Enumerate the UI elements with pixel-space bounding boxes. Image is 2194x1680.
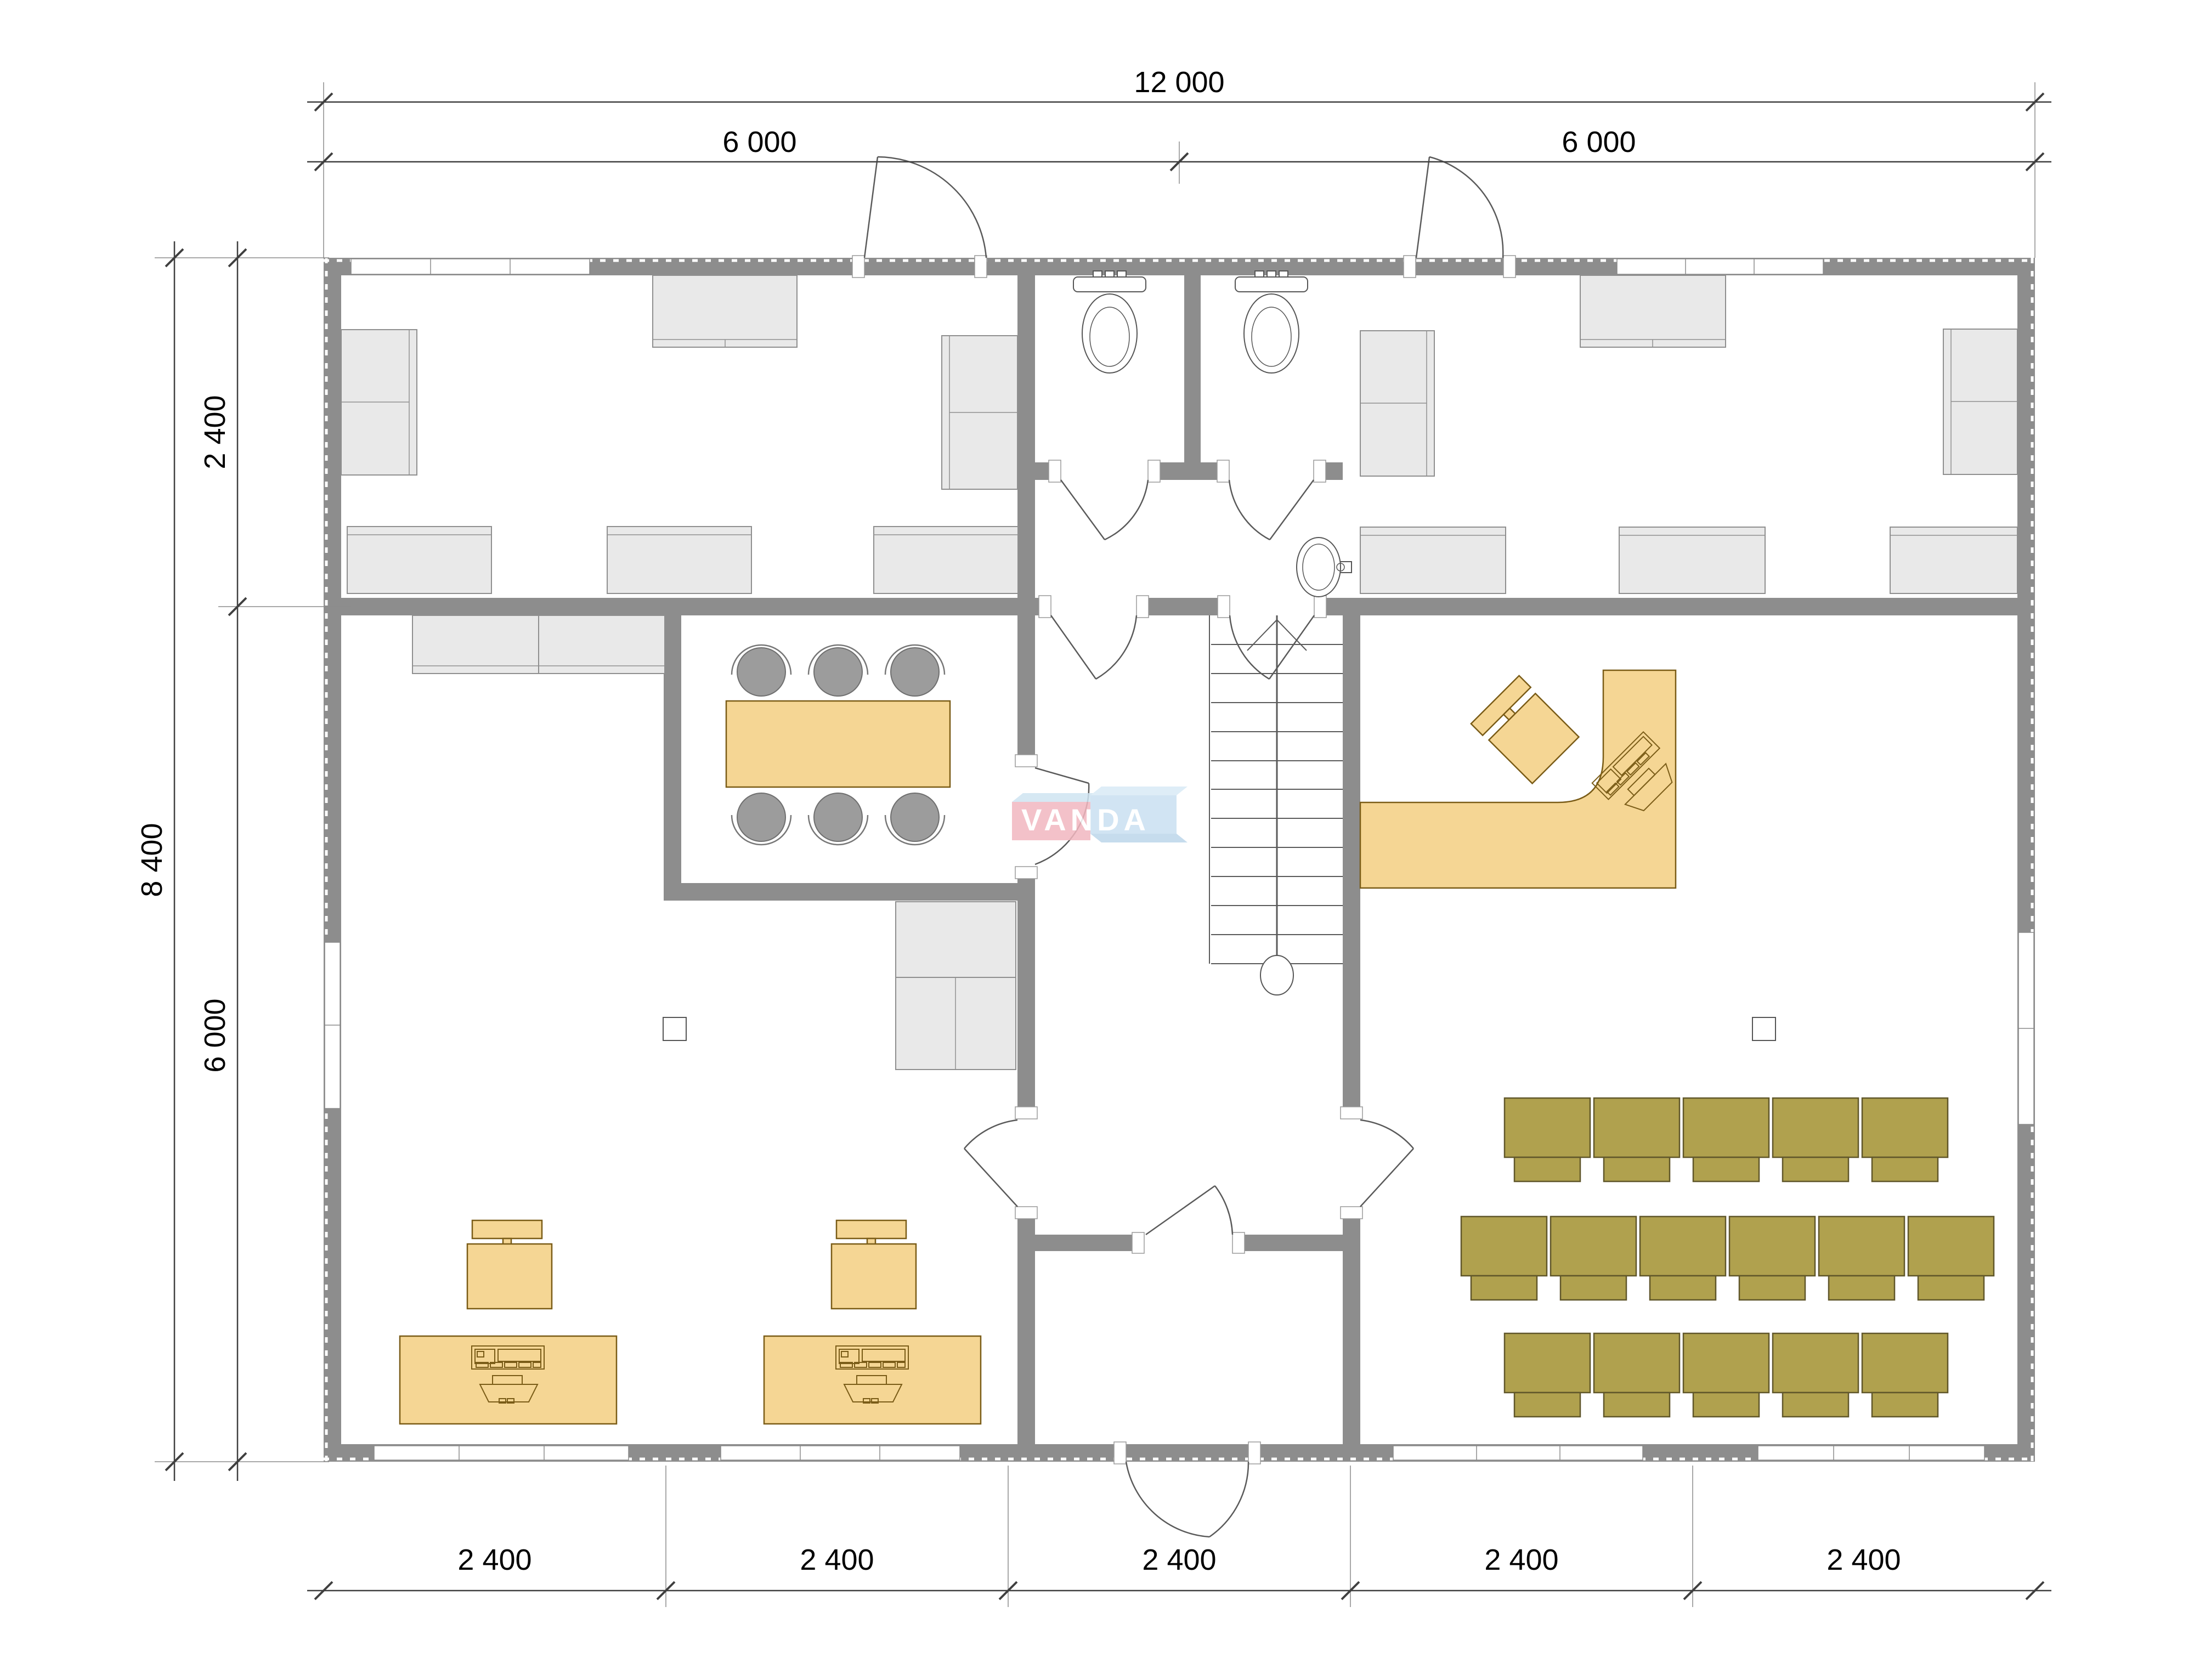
desk xyxy=(607,527,751,593)
meeting-chair xyxy=(737,648,785,696)
floor-marker xyxy=(1752,1017,1775,1040)
wall-mid-center xyxy=(1136,598,1230,615)
window xyxy=(351,259,590,274)
window xyxy=(1758,1446,1984,1460)
watermark-text: VANDA xyxy=(1021,802,1150,837)
wall-toilet-divider xyxy=(1184,275,1201,480)
window xyxy=(721,1446,960,1460)
wall-left xyxy=(324,258,341,1462)
desk xyxy=(1580,275,1726,347)
desk xyxy=(874,527,1018,593)
sanitary xyxy=(1073,271,1352,597)
window xyxy=(1617,259,1823,274)
stairs xyxy=(1209,615,1343,995)
cabinet xyxy=(896,902,1016,977)
watermark: VANDA xyxy=(1012,787,1188,842)
sink-icon xyxy=(1297,538,1352,597)
wall-right xyxy=(2017,258,2035,1462)
reception-chair xyxy=(1471,676,1580,784)
dim-label-bottom-5: 2 400 xyxy=(1827,1543,1901,1576)
reception xyxy=(1360,670,1683,888)
wall-vestibule-top xyxy=(1035,1235,1144,1251)
wall-b-lower xyxy=(1017,1207,1035,1444)
wall-mid-left xyxy=(341,598,1051,615)
wall-c-upper xyxy=(1343,615,1360,1119)
dim-label-left-total: 8 400 xyxy=(135,823,168,897)
desk xyxy=(347,527,491,593)
desk xyxy=(1890,527,2017,593)
dim-label-top-half-2: 6 000 xyxy=(1562,126,1636,159)
desk xyxy=(653,275,797,347)
window xyxy=(1393,1446,1643,1460)
desk xyxy=(412,615,539,674)
meeting-table xyxy=(726,701,950,787)
dim-label-top-half-1: 6 000 xyxy=(722,126,796,159)
wall-vestibule-top xyxy=(1232,1235,1343,1251)
wall-b-mid xyxy=(1017,867,1035,1119)
meeting-chair xyxy=(814,648,862,696)
floor-plan: 12 000 6 000 6 000 8 400 2 400 6 000 2 4… xyxy=(0,0,2194,1680)
meeting-chair xyxy=(737,793,785,841)
stair-pole xyxy=(1260,955,1293,995)
door-entrance-double xyxy=(1126,1462,1248,1537)
office-top-left xyxy=(341,275,1018,593)
wall-b-upper xyxy=(1017,275,1035,767)
dim-label-bottom-4: 2 400 xyxy=(1484,1543,1558,1576)
door-hall-left xyxy=(1051,615,1136,679)
door-vestibule xyxy=(1146,1186,1232,1235)
door-exterior-top-left xyxy=(864,157,986,258)
door-toilet-right xyxy=(1229,480,1314,540)
audience-area xyxy=(1461,1017,1994,1417)
wall-mid-right xyxy=(1314,598,2017,615)
door-left-room xyxy=(964,1120,1017,1207)
watermark-bevel xyxy=(1012,793,1101,802)
desk xyxy=(1360,527,1506,593)
meeting-chair xyxy=(891,793,939,841)
meeting-chair xyxy=(814,793,862,841)
meeting-chair xyxy=(891,648,939,696)
toilet-icon xyxy=(1235,271,1308,373)
dim-label-top-total: 12 000 xyxy=(1134,66,1224,99)
watermark-bevel xyxy=(1090,787,1188,795)
dim-label-left-upper: 2 400 xyxy=(199,395,231,469)
desk xyxy=(1619,527,1765,593)
dim-label-bottom-1: 2 400 xyxy=(457,1543,531,1576)
toilet-icon xyxy=(1073,271,1146,373)
dim-label-bottom-2: 2 400 xyxy=(800,1543,874,1576)
window xyxy=(374,1446,629,1460)
wall-meeting-left xyxy=(664,615,681,901)
door-exterior-top-right xyxy=(1416,157,1503,258)
meeting-room xyxy=(726,645,1016,1070)
wall-meeting-bottom xyxy=(664,883,1035,901)
wall-c-lower xyxy=(1343,1207,1360,1444)
door-right-room xyxy=(1360,1120,1413,1207)
office-top-right xyxy=(1360,275,2017,593)
dim-label-bottom-3: 2 400 xyxy=(1142,1543,1216,1576)
desk xyxy=(539,615,665,674)
floor-marker xyxy=(663,1017,686,1040)
door-toilet-left xyxy=(1061,480,1148,540)
dim-label-left-lower: 6 000 xyxy=(199,998,231,1072)
